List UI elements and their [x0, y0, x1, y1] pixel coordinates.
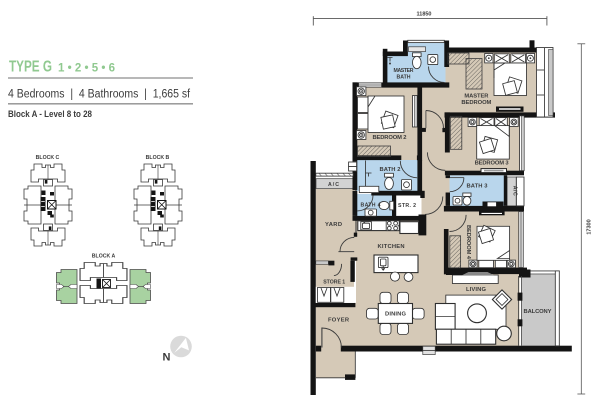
svg-text:BATH 2: BATH 2 [380, 167, 401, 173]
svg-text:Block A - Level 8 to 28: Block A - Level 8 to 28 [8, 109, 92, 119]
svg-text:1 • 2 • 5 • 6: 1 • 2 • 5 • 6 [58, 62, 115, 74]
svg-text:BATH 3: BATH 3 [467, 184, 489, 190]
svg-text:BALCONY: BALCONY [524, 309, 552, 315]
svg-text:YARD: YARD [325, 222, 342, 228]
svg-text:A/C: A/C [512, 186, 518, 196]
svg-text:A/C: A/C [328, 182, 339, 188]
svg-text:BEDROOM 2: BEDROOM 2 [373, 135, 407, 141]
svg-text:KITCHEN: KITCHEN [378, 244, 405, 250]
svg-text:BATH 4: BATH 4 [361, 202, 381, 208]
svg-text:STORE 1: STORE 1 [323, 280, 345, 286]
svg-text:BLOCK C: BLOCK C [36, 155, 60, 161]
svg-text:STR. 2: STR. 2 [398, 203, 416, 209]
svg-text:N: N [163, 352, 171, 364]
svg-text:BATH: BATH [397, 75, 411, 81]
svg-text:TYPE G: TYPE G [9, 59, 52, 76]
svg-text:DINING: DINING [385, 311, 406, 317]
svg-text:FOYER: FOYER [328, 317, 350, 323]
svg-text:17300: 17300 [587, 219, 593, 234]
svg-text:BEDROOM 3: BEDROOM 3 [475, 161, 510, 167]
svg-text:BLOCK B: BLOCK B [146, 155, 170, 161]
svg-text:BEDROOM: BEDROOM [461, 100, 491, 106]
svg-text:4 Bedrooms | 4 Bathrooms |: 4 Bedrooms | 4 Bathrooms | 1,665 sf [8, 88, 191, 100]
svg-text:MASTER: MASTER [394, 68, 414, 74]
svg-text:LIVING: LIVING [466, 287, 486, 293]
svg-text:BLOCK A: BLOCK A [92, 254, 116, 260]
svg-text:BEDROOM 4: BEDROOM 4 [465, 225, 471, 260]
svg-text:11850: 11850 [417, 12, 432, 18]
svg-text:MASTER: MASTER [464, 94, 489, 100]
